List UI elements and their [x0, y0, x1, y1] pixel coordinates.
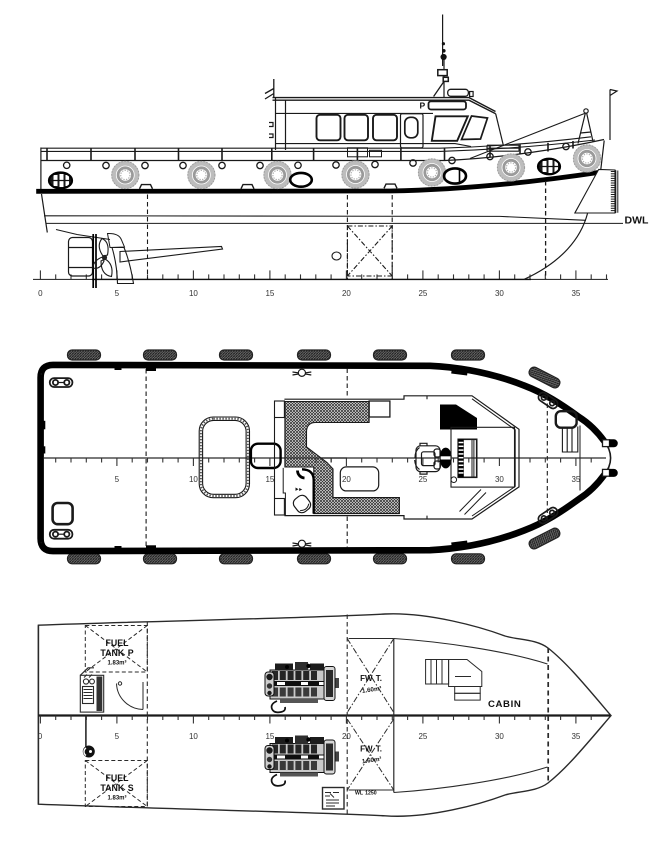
svg-text:TANK P: TANK P	[100, 648, 133, 658]
svg-text:25: 25	[418, 289, 427, 298]
svg-text:1.83m³: 1.83m³	[107, 660, 126, 667]
svg-text:10: 10	[189, 475, 198, 484]
svg-text:WL 1250: WL 1250	[355, 791, 377, 797]
svg-text:CABIN: CABIN	[488, 699, 521, 710]
svg-text:5: 5	[115, 289, 120, 298]
svg-text:30: 30	[495, 732, 504, 741]
svg-text:30: 30	[495, 289, 504, 298]
svg-text:5: 5	[115, 475, 120, 484]
svg-text:FUEL: FUEL	[106, 638, 130, 648]
svg-text:0: 0	[38, 732, 43, 741]
svg-text:FW T.: FW T.	[360, 745, 382, 754]
svg-text:25: 25	[418, 475, 427, 484]
svg-text:20: 20	[342, 289, 351, 298]
svg-text:20: 20	[342, 475, 351, 484]
svg-text:FUEL: FUEL	[106, 773, 130, 783]
svg-text:DWL: DWL	[625, 215, 649, 227]
svg-text:0: 0	[38, 289, 43, 298]
svg-text:35: 35	[571, 732, 580, 741]
svg-text:25: 25	[418, 732, 427, 741]
svg-text:15: 15	[265, 732, 274, 741]
svg-text:15: 15	[265, 289, 274, 298]
svg-text:P: P	[420, 101, 426, 111]
svg-text:30: 30	[495, 475, 504, 484]
svg-text:10: 10	[189, 289, 198, 298]
svg-text:FW T.: FW T.	[360, 674, 382, 683]
svg-text:TANK S: TANK S	[100, 783, 133, 793]
svg-text:1.83m³: 1.83m³	[107, 795, 126, 802]
svg-text:15: 15	[265, 475, 274, 484]
svg-text:10: 10	[189, 732, 198, 741]
svg-text:35: 35	[571, 475, 580, 484]
svg-text:35: 35	[571, 289, 580, 298]
svg-text:5: 5	[115, 732, 120, 741]
